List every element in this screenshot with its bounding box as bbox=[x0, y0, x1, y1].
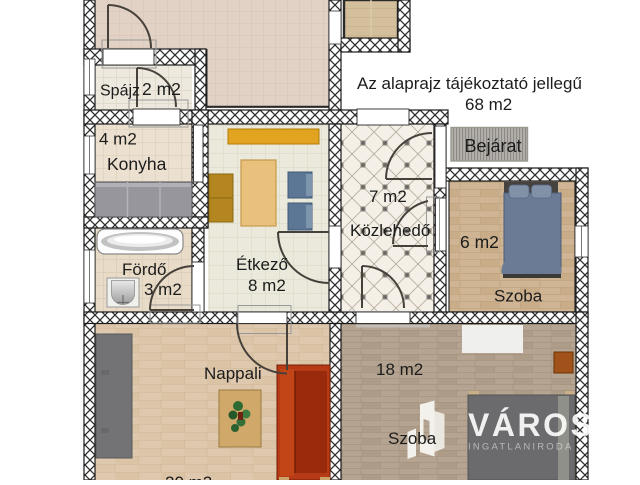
svg-text:Spájz: Spájz bbox=[100, 83, 140, 100]
svg-text:7 m2: 7 m2 bbox=[369, 187, 407, 206]
svg-text:Bejárat: Bejárat bbox=[465, 136, 522, 156]
svg-text:Fördő: Fördő bbox=[122, 260, 166, 279]
svg-text:2 m2: 2 m2 bbox=[142, 79, 181, 99]
svg-text:Az alaprajz tájékoztató jelleg: Az alaprajz tájékoztató jellegű bbox=[357, 74, 582, 93]
svg-text:Nappali: Nappali bbox=[204, 364, 262, 383]
svg-text:68 m2: 68 m2 bbox=[465, 95, 512, 114]
svg-text:4 m2: 4 m2 bbox=[99, 130, 137, 149]
svg-text:Szoba: Szoba bbox=[494, 287, 543, 306]
svg-text:20 m2: 20 m2 bbox=[165, 473, 212, 480]
svg-text:6 m2: 6 m2 bbox=[460, 232, 499, 252]
svg-text:Étkező: Étkező bbox=[236, 255, 288, 274]
svg-text:Konyha: Konyha bbox=[107, 154, 167, 174]
svg-text:Szoba: Szoba bbox=[388, 429, 437, 448]
svg-text:18 m2: 18 m2 bbox=[376, 360, 423, 379]
svg-text:VÁROS: VÁROS bbox=[468, 407, 594, 443]
svg-text:INGATLANIRODA: INGATLANIRODA bbox=[468, 442, 574, 453]
svg-text:8 m2: 8 m2 bbox=[248, 276, 286, 295]
svg-text:3 m2: 3 m2 bbox=[144, 280, 182, 299]
svg-text:Közlehedő: Közlehedő bbox=[350, 221, 430, 240]
